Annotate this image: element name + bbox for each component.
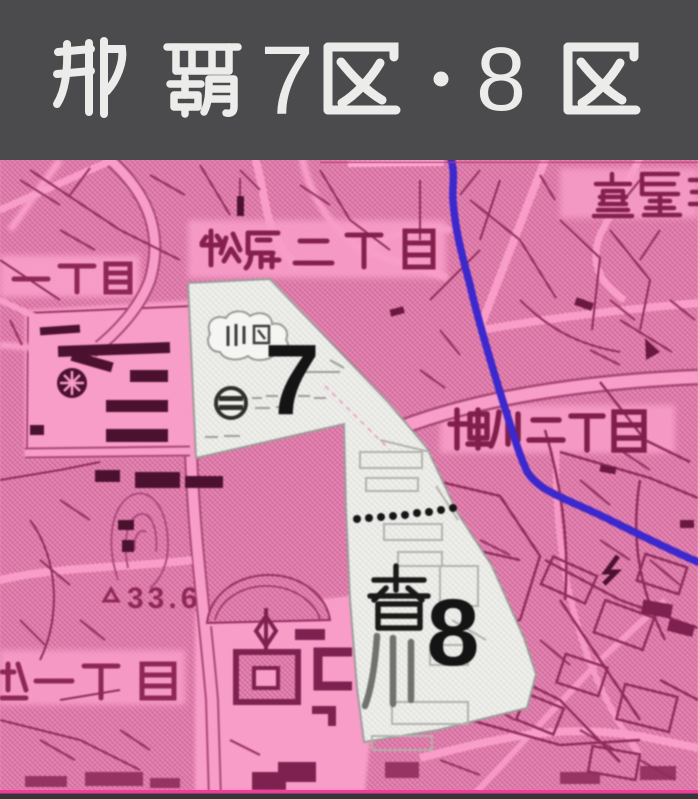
svg-text:8: 8 bbox=[476, 30, 526, 130]
svg-text:33.6: 33.6 bbox=[127, 582, 201, 615]
svg-text:7: 7 bbox=[264, 324, 320, 436]
svg-text:7: 7 bbox=[260, 26, 314, 135]
svg-text:8: 8 bbox=[427, 580, 480, 686]
